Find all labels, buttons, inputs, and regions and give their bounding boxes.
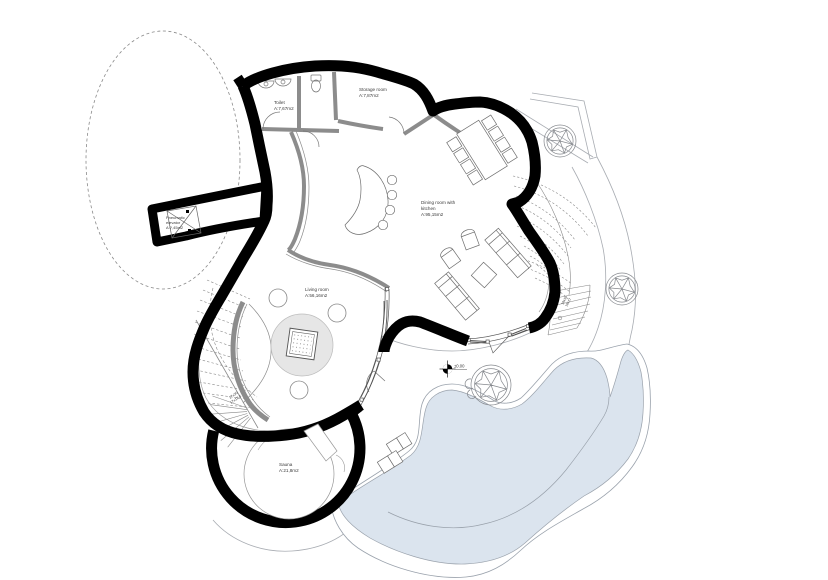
svg-text:kitchen: kitchen (421, 206, 436, 211)
svg-text:A:?,45m2: A:?,45m2 (166, 225, 184, 230)
svg-text:A:56,16m2: A:56,16m2 (305, 293, 328, 298)
svg-text:Sauna: Sauna (279, 462, 293, 467)
svg-text:±0.00: ±0.00 (454, 364, 465, 369)
svg-text:Dining room with: Dining room with (421, 200, 456, 205)
svg-text:A:7,87m2: A:7,87m2 (359, 93, 379, 98)
svg-text:Living room: Living room (305, 287, 329, 292)
svg-text:Storage room: Storage room (359, 87, 387, 92)
svg-text:A:95,15m2: A:95,15m2 (421, 212, 444, 217)
svg-text:Toilet: Toilet (274, 100, 285, 105)
svg-text:A:21,8m2: A:21,8m2 (279, 468, 299, 473)
svg-text:A:7,67m2: A:7,67m2 (274, 106, 294, 111)
